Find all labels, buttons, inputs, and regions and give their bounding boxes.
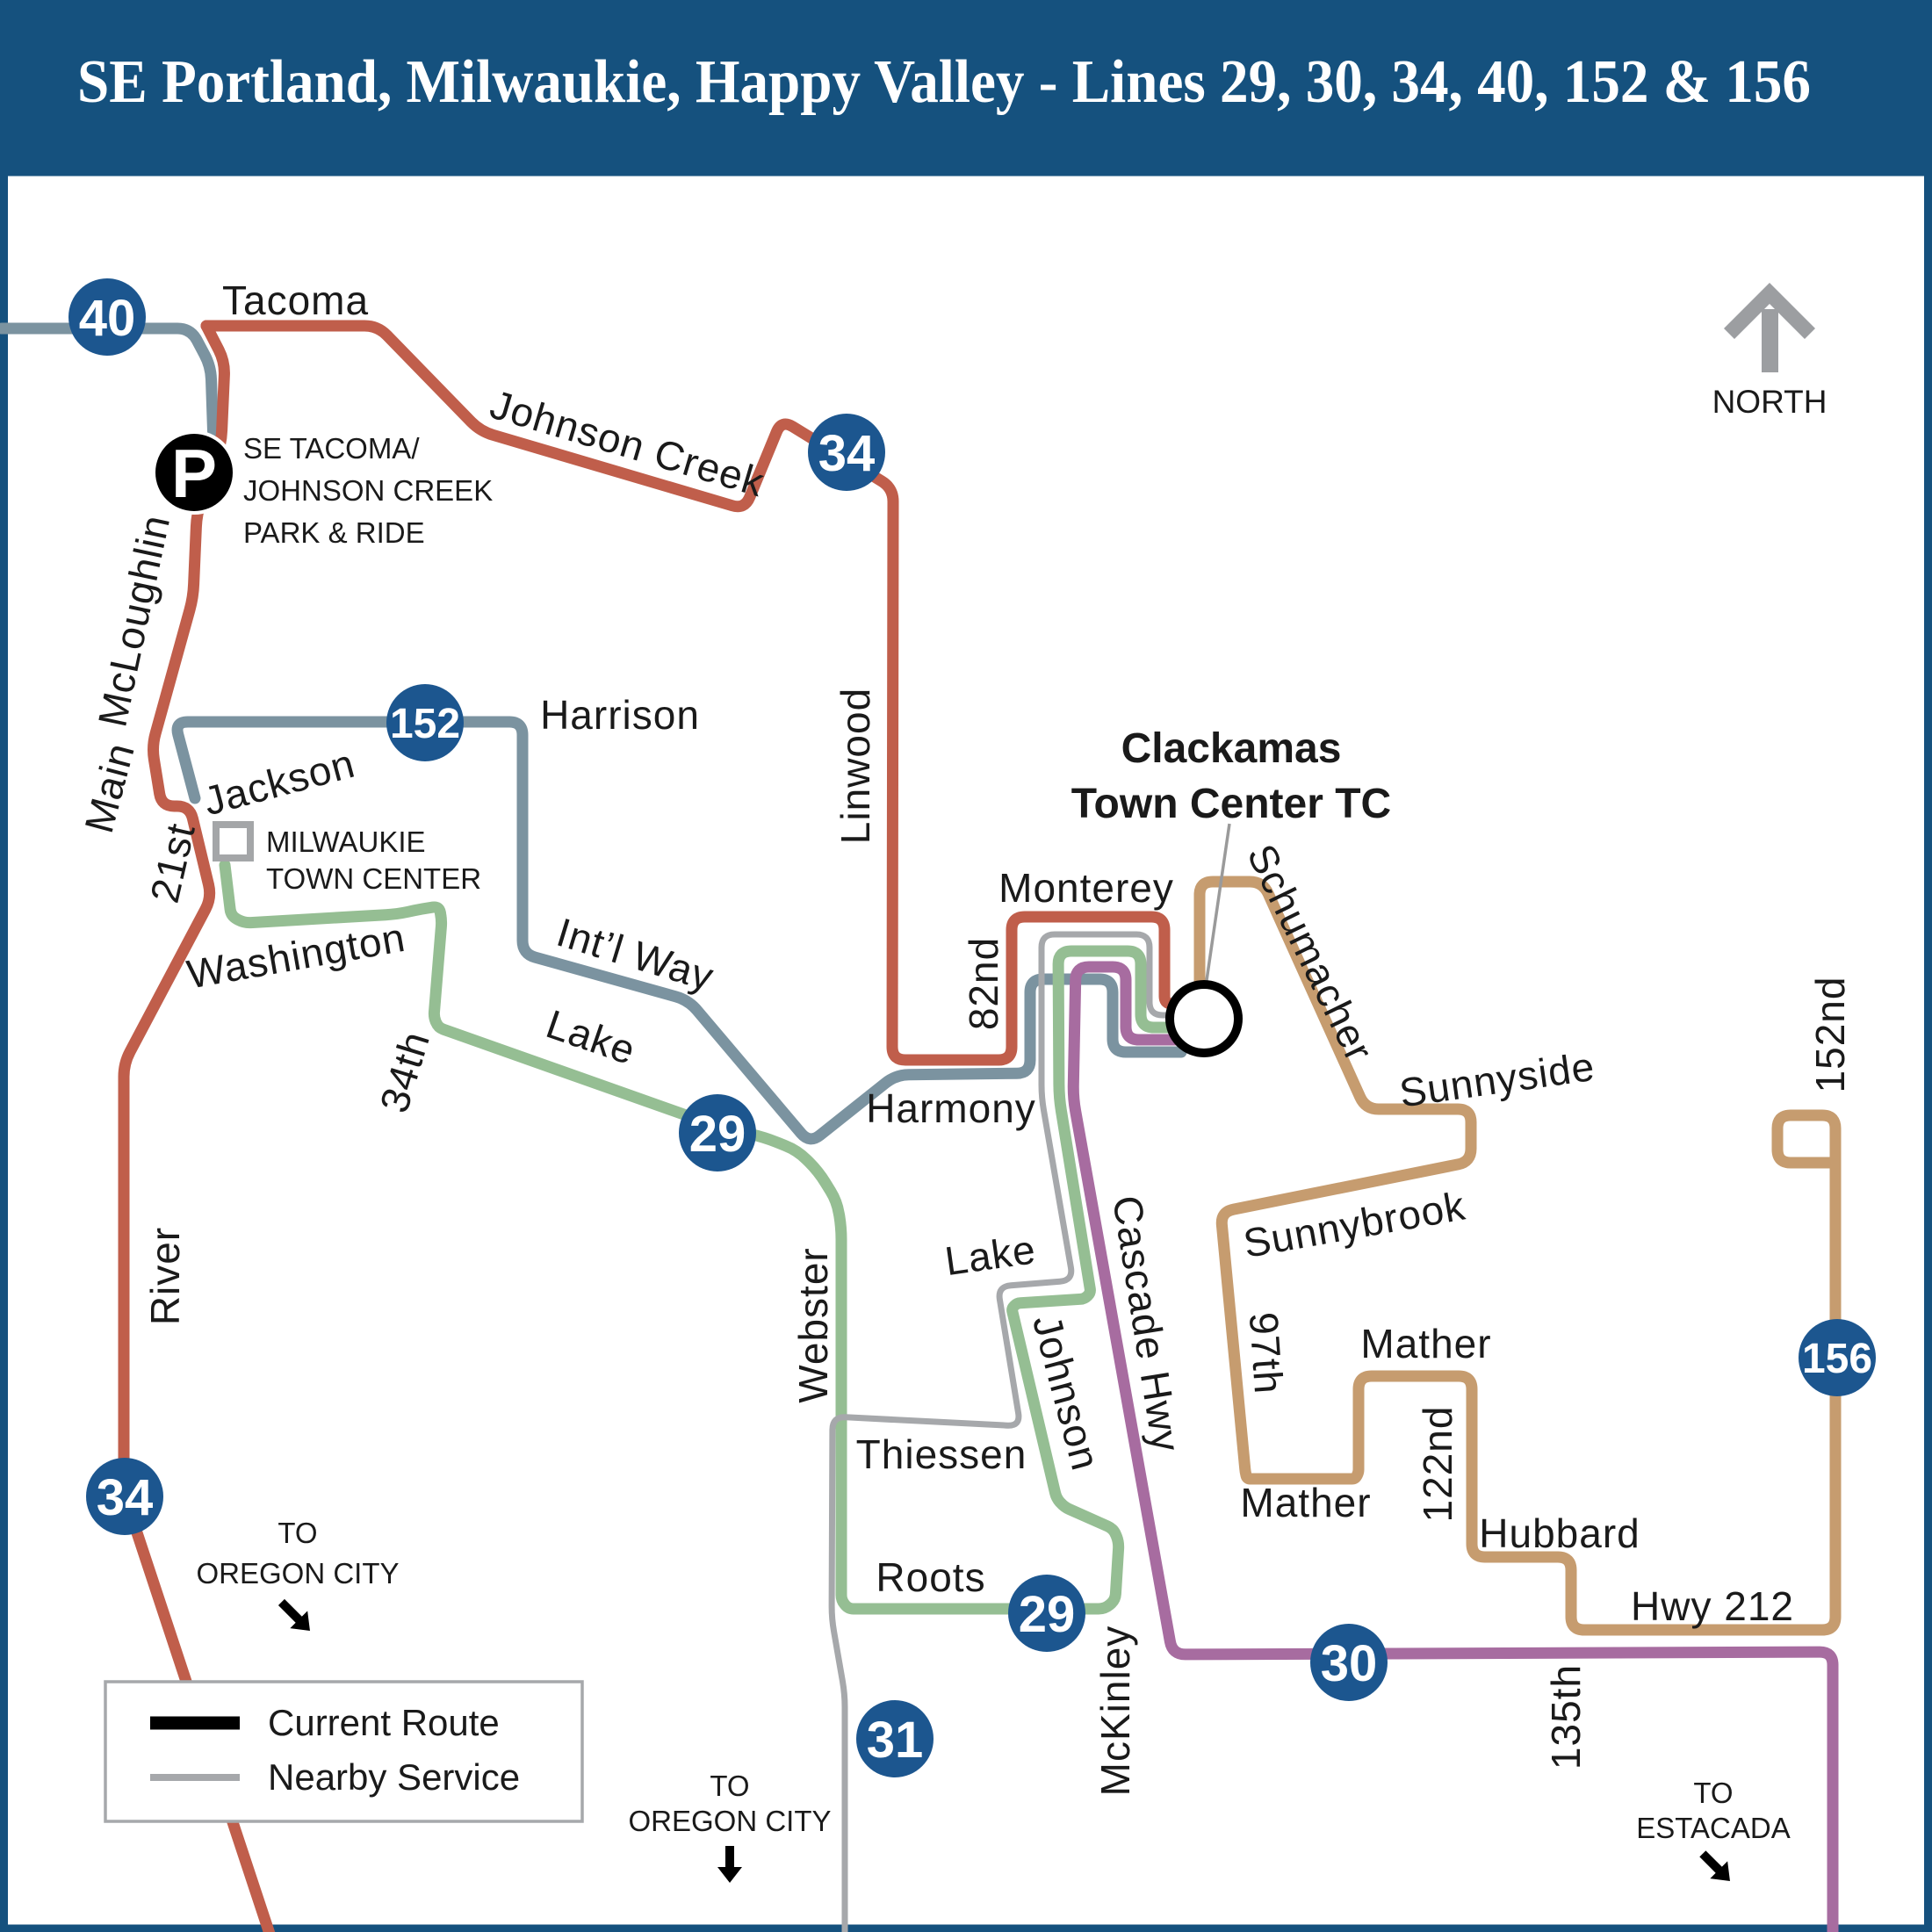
svg-text:SE TACOMA/: SE TACOMA/ [243, 432, 420, 465]
svg-text:SE Portland, Milwaukie, Happy: SE Portland, Milwaukie, Happy Valley - L… [77, 48, 1811, 116]
svg-text:PARK & RIDE: PARK & RIDE [243, 516, 425, 549]
svg-text:Thiessen: Thiessen [856, 1431, 1027, 1477]
svg-text:82nd: 82nd [961, 937, 1006, 1030]
svg-text:Nearby Service: Nearby Service [268, 1756, 520, 1798]
svg-text:Mather: Mather [1360, 1321, 1491, 1366]
svg-text:Hwy 212: Hwy 212 [1631, 1583, 1794, 1629]
svg-text:ESTACADA: ESTACADA [1636, 1812, 1790, 1844]
svg-text:Harmony: Harmony [866, 1085, 1036, 1131]
svg-text:OREGON CITY: OREGON CITY [628, 1805, 831, 1837]
svg-text:OREGON CITY: OREGON CITY [196, 1557, 399, 1590]
svg-text:152: 152 [390, 701, 460, 747]
svg-text:40: 40 [79, 290, 136, 347]
svg-text:122nd: 122nd [1415, 1406, 1460, 1523]
svg-text:P: P [171, 435, 217, 512]
svg-text:Hubbard: Hubbard [1479, 1510, 1640, 1556]
svg-text:River: River [142, 1227, 188, 1325]
svg-text:152nd: 152nd [1807, 977, 1853, 1093]
svg-text:JOHNSON CREEK: JOHNSON CREEK [243, 474, 493, 507]
svg-text:Town Center TC: Town Center TC [1071, 781, 1391, 827]
svg-text:Roots: Roots [876, 1554, 985, 1600]
svg-text:156: 156 [1802, 1336, 1872, 1382]
svg-text:NORTH: NORTH [1712, 384, 1827, 420]
svg-text:135th: 135th [1543, 1664, 1589, 1770]
svg-text:TO: TO [1693, 1777, 1733, 1809]
svg-text:Current Route: Current Route [268, 1702, 500, 1743]
svg-text:Monterey: Monterey [998, 865, 1174, 911]
svg-text:Clackamas: Clackamas [1121, 725, 1342, 772]
svg-text:TO: TO [278, 1517, 317, 1549]
svg-text:29: 29 [1019, 1586, 1076, 1643]
svg-text:Tacoma: Tacoma [222, 278, 369, 323]
svg-text:97th: 97th [1241, 1310, 1292, 1395]
svg-text:Mather: Mather [1240, 1480, 1371, 1525]
svg-text:31: 31 [867, 1712, 924, 1769]
svg-text:34: 34 [97, 1469, 154, 1526]
svg-text:Linwood: Linwood [833, 688, 878, 844]
svg-text:34: 34 [818, 425, 876, 482]
svg-text:TO: TO [710, 1770, 749, 1802]
svg-text:Harrison: Harrison [540, 692, 700, 738]
svg-text:TOWN CENTER: TOWN CENTER [266, 862, 481, 895]
svg-text:30: 30 [1321, 1635, 1378, 1692]
svg-text:Webster: Webster [790, 1247, 836, 1402]
svg-text:MILWAUKIE: MILWAUKIE [266, 825, 426, 858]
svg-text:McKinley: McKinley [1092, 1626, 1138, 1797]
svg-text:29: 29 [689, 1106, 746, 1163]
